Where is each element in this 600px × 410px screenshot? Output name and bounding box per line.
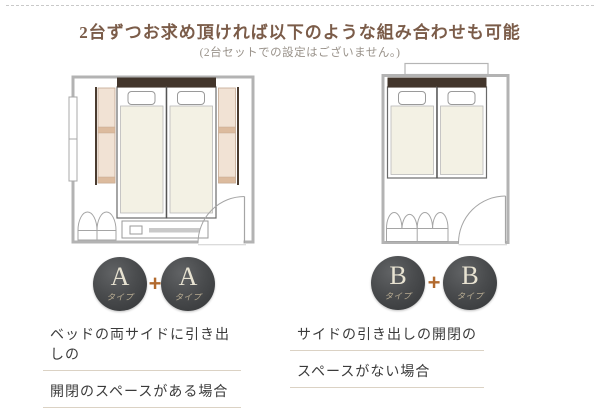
badge-sub-label: タイプ (106, 291, 133, 303)
type-b-badge-2: B タイプ (443, 256, 497, 310)
caption-b-line-1: サイドの引き出しの開閉の (290, 320, 484, 351)
badge-letter: A (179, 265, 198, 290)
badge-letter: A (111, 265, 130, 290)
type-b-badge-1: B タイプ (371, 256, 425, 310)
badge-sub-label: タイプ (174, 291, 201, 303)
badge-sub-label: タイプ (384, 290, 411, 302)
badge-letter: B (389, 264, 406, 289)
page: 2台ずつお求め頂ければ以下のような組み合わせも可能 (2台セットでの設定はござい… (0, 0, 600, 410)
type-a-badge-1: A タイプ (93, 257, 147, 311)
caption-b-line-2: スペースがない場合 (290, 351, 484, 388)
badge-sub-label: タイプ (456, 290, 483, 302)
bed-right (437, 78, 487, 179)
type-a-badge-2: A タイプ (161, 257, 215, 311)
tv-stand-icon (122, 221, 208, 238)
floor-plan-b (370, 58, 520, 252)
bed-right (167, 78, 217, 219)
caption-a: ベッドの両サイドに引き出しの 開閉のスペースがある場合 (43, 320, 241, 408)
badge-letter: B (461, 264, 478, 289)
floor-plan-a (60, 62, 260, 252)
caption-a-line-2: 開閉のスペースがある場合 (43, 371, 241, 408)
section-title: 2台ずつお求め頂ければ以下のような組み合わせも可能 (0, 18, 600, 43)
caption-a-line-1: ベッドの両サイドに引き出しの (43, 320, 241, 371)
window-icon (69, 97, 77, 181)
drawer-panel-left (95, 87, 115, 185)
top-window-icon (405, 64, 488, 75)
top-dashed-divider (6, 5, 594, 6)
bed-left (117, 78, 167, 219)
plus-sign-b: + (423, 269, 445, 297)
caption-b: サイドの引き出しの開閉の スペースがない場合 (290, 320, 484, 388)
bed-left (388, 78, 438, 179)
